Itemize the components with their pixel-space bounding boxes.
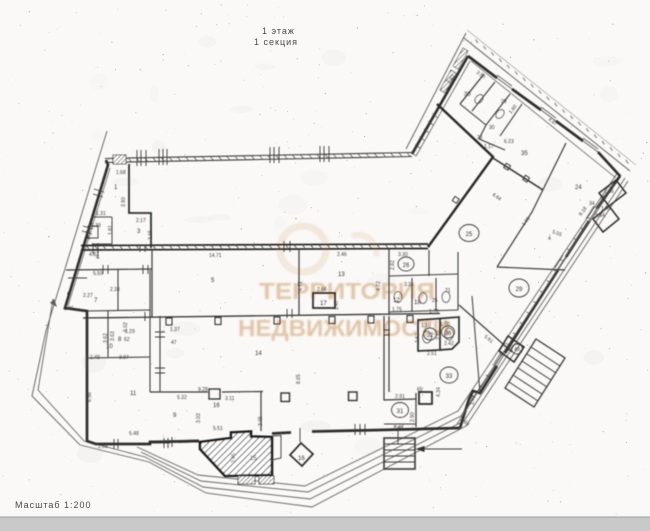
svg-text:1 секция: 1 секция xyxy=(254,37,298,47)
svg-text:14: 14 xyxy=(255,351,262,357)
svg-text:31: 31 xyxy=(397,409,404,415)
svg-text:1.75: 1.75 xyxy=(392,307,402,313)
svg-text:30: 30 xyxy=(464,92,471,98)
svg-text:8.65: 8.65 xyxy=(296,374,302,384)
svg-text:1.31: 1.31 xyxy=(96,211,106,217)
svg-text:16: 16 xyxy=(213,403,220,409)
svg-text:2.82: 2.82 xyxy=(390,260,396,270)
svg-text:2.17: 2.17 xyxy=(136,218,146,224)
svg-text:30: 30 xyxy=(489,125,495,131)
svg-text:29: 29 xyxy=(516,287,523,293)
svg-text:4.87: 4.87 xyxy=(547,117,559,128)
svg-text:11: 11 xyxy=(130,391,137,397)
svg-text:2.47: 2.47 xyxy=(394,425,404,431)
svg-text:3.05: 3.05 xyxy=(258,416,264,426)
svg-text:3.05: 3.05 xyxy=(470,395,476,405)
svg-text:65: 65 xyxy=(417,387,423,393)
svg-text:20: 20 xyxy=(600,195,606,201)
svg-text:2.91: 2.91 xyxy=(395,394,405,400)
svg-text:16: 16 xyxy=(298,456,305,462)
svg-text:Масштаб 1:200: Масштаб 1:200 xyxy=(15,500,92,510)
svg-text:4: 4 xyxy=(548,236,551,242)
svg-text:3: 3 xyxy=(137,229,141,235)
svg-text:2.05: 2.05 xyxy=(64,306,74,312)
svg-text:21: 21 xyxy=(445,288,451,294)
svg-text:1.50: 1.50 xyxy=(86,230,92,240)
svg-text:6.18: 6.18 xyxy=(578,206,589,218)
svg-text:5.48: 5.48 xyxy=(129,431,139,437)
svg-text:43: 43 xyxy=(514,347,520,353)
svg-text:14.71: 14.71 xyxy=(209,253,222,259)
svg-text:2.38: 2.38 xyxy=(110,287,120,293)
svg-text:24: 24 xyxy=(575,185,582,191)
svg-text:5.55: 5.55 xyxy=(551,229,562,238)
svg-text:3.90: 3.90 xyxy=(121,197,127,207)
svg-text:5: 5 xyxy=(211,278,215,284)
svg-text:34: 34 xyxy=(589,201,595,207)
svg-text:25: 25 xyxy=(466,232,473,238)
svg-text:9: 9 xyxy=(173,413,177,419)
svg-text:15: 15 xyxy=(250,456,257,462)
svg-text:3.30: 3.30 xyxy=(398,252,408,258)
svg-text:29: 29 xyxy=(501,99,507,105)
svg-text:1.60: 1.60 xyxy=(508,104,519,116)
svg-text:26: 26 xyxy=(477,135,483,141)
svg-text:1: 1 xyxy=(114,185,118,191)
svg-text:2.36: 2.36 xyxy=(604,189,614,195)
svg-text:5.51: 5.51 xyxy=(213,426,223,432)
svg-text:2.27: 2.27 xyxy=(83,293,93,299)
svg-text:5.55: 5.55 xyxy=(93,271,103,277)
svg-text:1.81: 1.81 xyxy=(108,225,114,235)
svg-text:1.54: 1.54 xyxy=(595,213,605,219)
svg-text:4.64: 4.64 xyxy=(491,192,503,203)
svg-text:4.34: 4.34 xyxy=(436,387,442,397)
svg-text:9.28: 9.28 xyxy=(198,387,208,393)
svg-text:3.05: 3.05 xyxy=(231,453,237,463)
svg-text:47: 47 xyxy=(171,340,177,346)
svg-text:2.46: 2.46 xyxy=(337,252,347,258)
svg-text:35: 35 xyxy=(521,151,528,157)
svg-text:2.15: 2.15 xyxy=(148,230,154,240)
svg-text:ТЕРРИТОРИЯ: ТЕРРИТОРИЯ xyxy=(259,278,435,304)
svg-text:5.32: 5.32 xyxy=(177,395,187,401)
svg-text:1.17: 1.17 xyxy=(484,144,494,150)
svg-text:1.39: 1.39 xyxy=(91,223,101,229)
svg-text:НЕДВИЖИМОСТИ: НЕДВИЖИМОСТИ xyxy=(238,315,450,341)
svg-text:1.06: 1.06 xyxy=(521,216,532,227)
svg-text:8: 8 xyxy=(118,337,122,343)
svg-text:3.97: 3.97 xyxy=(119,355,129,361)
svg-text:6.02: 6.02 xyxy=(123,322,129,332)
svg-text:3.11: 3.11 xyxy=(225,396,235,402)
svg-text:3.03: 3.03 xyxy=(196,413,202,423)
svg-text:2.90: 2.90 xyxy=(410,412,416,422)
svg-text:7: 7 xyxy=(94,298,98,304)
svg-text:26: 26 xyxy=(403,263,410,269)
svg-text:2.51: 2.51 xyxy=(427,351,437,357)
svg-text:10: 10 xyxy=(106,344,113,350)
svg-text:1.49: 1.49 xyxy=(601,206,611,212)
svg-text:3.63: 3.63 xyxy=(110,331,116,341)
svg-text:2.42: 2.42 xyxy=(444,341,454,347)
svg-text:62: 62 xyxy=(124,337,130,343)
svg-text:33: 33 xyxy=(446,374,453,380)
svg-text:3.93: 3.93 xyxy=(446,74,457,86)
svg-text:3.62: 3.62 xyxy=(103,333,109,343)
svg-text:1.68: 1.68 xyxy=(116,170,126,176)
svg-text:5.61: 5.61 xyxy=(483,334,494,345)
svg-text:6.23: 6.23 xyxy=(504,139,514,145)
svg-text:1 этаж: 1 этаж xyxy=(262,26,295,36)
svg-text:6.56: 6.56 xyxy=(87,392,93,402)
svg-text:4.82: 4.82 xyxy=(89,252,99,258)
